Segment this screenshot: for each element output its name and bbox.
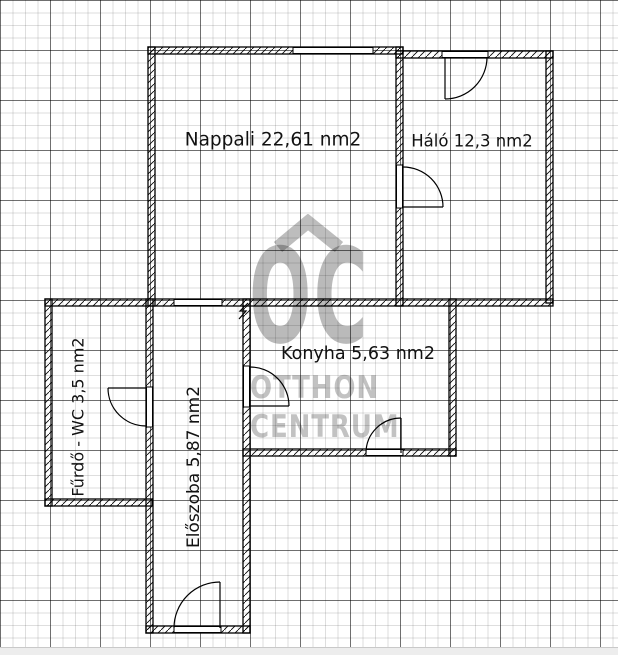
door-nappali-halo [403, 167, 443, 207]
floor-plan: OC OTTHON CENTRUM [0, 0, 618, 655]
wall-eloszoba-left [146, 299, 153, 633]
window-nappali-top [293, 48, 373, 54]
opening-nappali-eloszoba [174, 300, 222, 306]
wall-furdo-bottom [45, 499, 152, 506]
wall-konyha-bottom [243, 449, 456, 456]
room-label-furdo: Fűrdő - WC 3,5 nm2 [69, 337, 88, 496]
doorjamb-nappali-halo [397, 165, 403, 208]
wall-konyha-right [449, 299, 456, 456]
room-label-halo: Háló 12,3 nm2 [411, 132, 532, 151]
doorjamb-furdo [147, 387, 153, 427]
wall-nappali-left [148, 47, 155, 306]
doorjamb-entrance [174, 627, 221, 633]
door-furdo [108, 388, 146, 426]
room-label-nappali: Nappali 22,61 nm2 [185, 130, 362, 151]
room-label-eloszoba: Előszoba 5,87 nm2 [184, 386, 204, 548]
plan-drawing [0, 0, 618, 655]
door-konyha-bottom [366, 418, 401, 453]
doorjamb-halo-top [442, 52, 488, 58]
room-label-konyha: Konyha 5,63 nm2 [281, 344, 435, 364]
door-entrance [174, 582, 220, 628]
door-halo-top [445, 57, 487, 99]
doorjamb-konyha-bottom [366, 450, 403, 456]
wall-halo-right [546, 51, 553, 303]
wall-furdo-left [45, 299, 52, 506]
page-edge-strip [0, 647, 618, 655]
doorjamb-konyha-left [244, 366, 250, 407]
wall-middle-band [45, 299, 553, 306]
wall-eloszoba-konyha-divider [243, 299, 250, 633]
door-konyha-left [250, 367, 289, 406]
